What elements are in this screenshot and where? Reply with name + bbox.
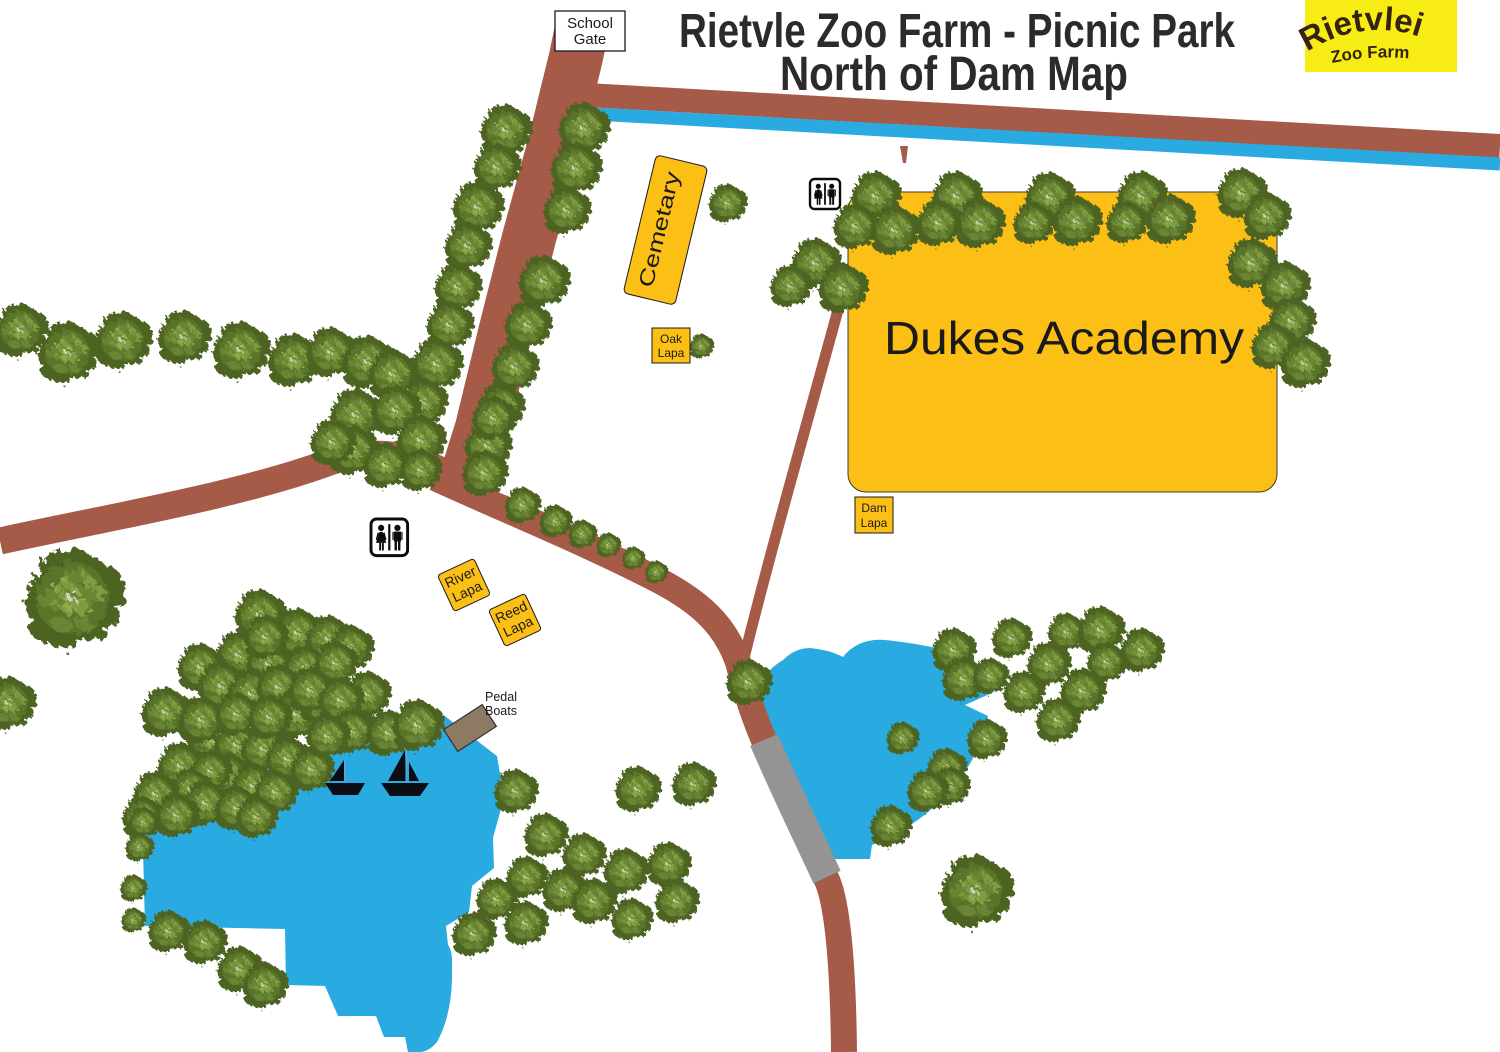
svg-text:Pedal: Pedal: [485, 690, 517, 704]
svg-text:Oak: Oak: [660, 332, 683, 346]
svg-text:Lapa: Lapa: [658, 346, 685, 360]
svg-text:Dam: Dam: [861, 501, 886, 515]
svg-text:Dukes Academy: Dukes Academy: [884, 312, 1244, 364]
svg-text:Boats: Boats: [485, 704, 517, 718]
svg-text:School: School: [567, 15, 613, 32]
svg-text:Gate: Gate: [574, 31, 607, 48]
svg-text:Lapa: Lapa: [861, 516, 888, 530]
svg-text:North of Dam Map: North of Dam Map: [780, 48, 1128, 101]
